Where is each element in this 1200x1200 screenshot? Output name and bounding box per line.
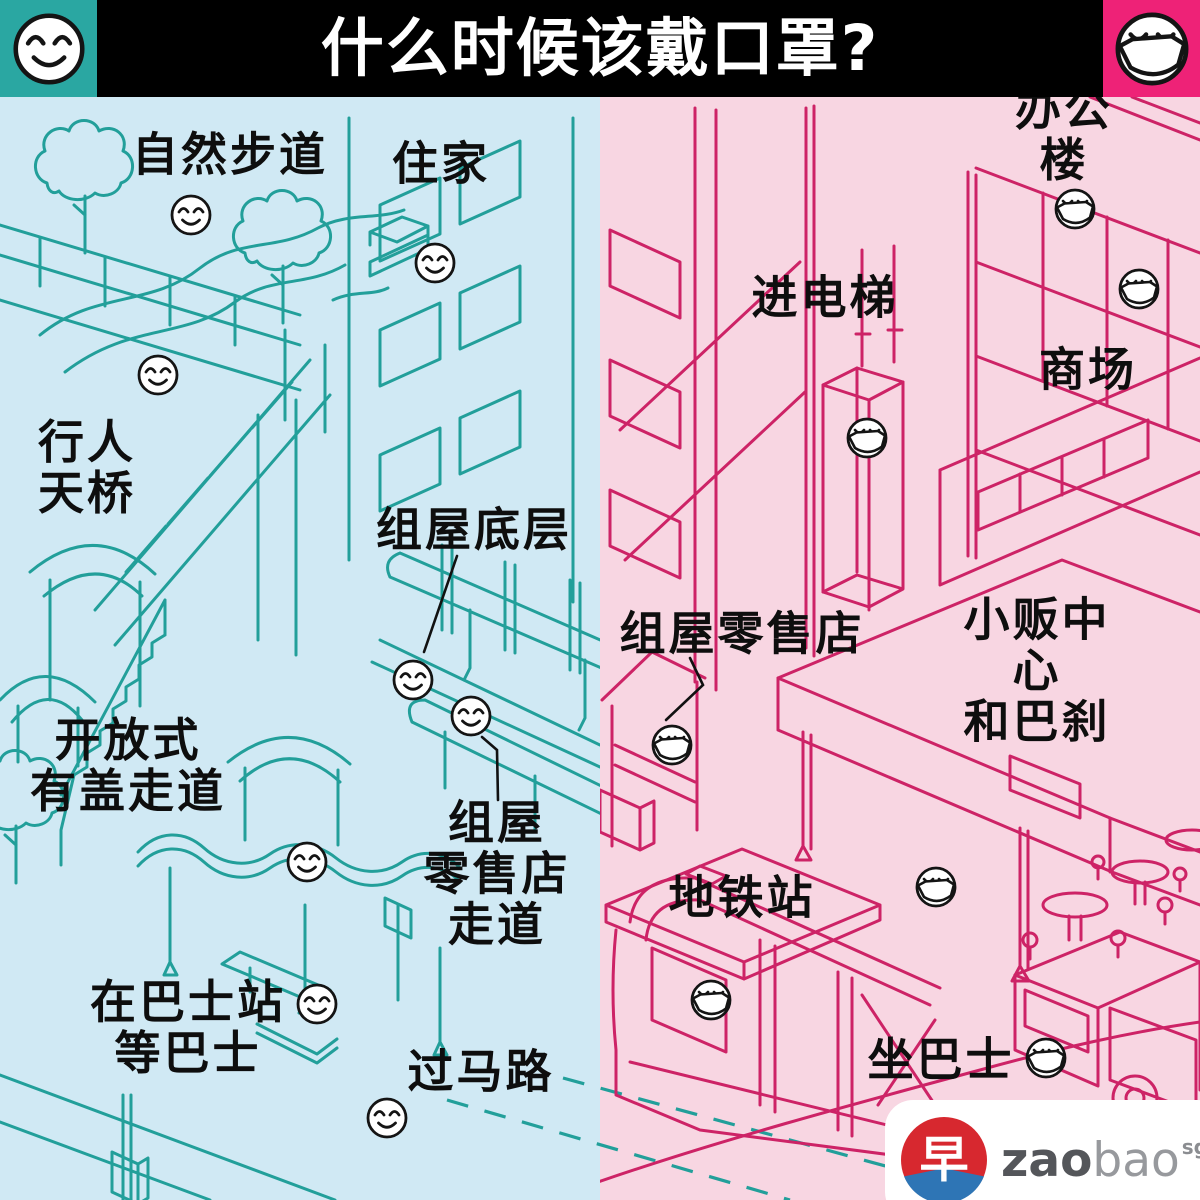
smiley-mask-icon (1120, 270, 1158, 308)
road-curb (0, 1075, 335, 1200)
page-title: 什么时候该戴口罩? (97, 0, 1103, 97)
smiley-no-mask-icon (11, 11, 87, 87)
label-hawker-centre-market: 小贩中心 和巴刹 (956, 594, 1119, 747)
tree-icon (233, 191, 330, 324)
smiley-mask-icon (692, 981, 730, 1019)
smiley-mask-icon (653, 726, 691, 764)
label-wait-bus-at-stop: 在巴士站 等巴士 (90, 977, 286, 1079)
smiley-no-mask-icon (416, 244, 454, 282)
smiley-mask-icon (1027, 1039, 1065, 1077)
label-crossing-road: 过马路 (408, 1046, 555, 1097)
smiley-mask-icon (1113, 10, 1191, 88)
label-taking-lift: 进电梯 (752, 272, 899, 323)
smiley-no-mask-icon (139, 356, 177, 394)
smiley-no-mask-icon (394, 661, 432, 699)
label-mall: 商场 (1039, 344, 1137, 395)
zaobao-glyph: 早 (919, 1130, 968, 1188)
no-mask-badge (0, 0, 97, 97)
logo-zao-text: zao (1001, 1133, 1092, 1188)
zaobao-wordmark: zaobaosg (1001, 1133, 1200, 1188)
label-open-covered-walkway: 开放式 有盖走道 (30, 715, 226, 817)
label-home: 住家 (392, 138, 490, 189)
zaobao-logo: 早 zaobaosg (885, 1100, 1200, 1200)
smiley-no-mask-icon (368, 1099, 406, 1137)
label-taking-bus: 坐巴士 (868, 1034, 1015, 1085)
zaobao-circle-icon: 早 (901, 1117, 987, 1200)
header-bar: 什么时候该戴口罩? (0, 0, 1200, 97)
label-pedestrian-bridge: 行人 天桥 (38, 417, 136, 519)
smiley-mask-icon (917, 868, 955, 906)
label-hdb-retail-shop: 组屋零售店 (620, 608, 865, 659)
label-hdb-void-deck: 组屋底层 (376, 504, 572, 555)
label-mrt-station: 地铁站 (669, 872, 816, 923)
smiley-no-mask-icon (298, 985, 336, 1023)
smiley-mask-icon (1056, 190, 1094, 228)
label-office-building: 办公楼 (996, 84, 1132, 186)
tree-icon (35, 121, 132, 254)
smiley-no-mask-icon (288, 843, 326, 881)
smiley-no-mask-icon (452, 697, 490, 735)
smiley-mask-icon (848, 419, 886, 457)
infographic: 自然步道 住家 行人 天桥 组屋底层 开放式 有盖走道 组屋 零售店 走道 在巴… (0, 0, 1200, 1200)
logo-sg-superscript: sg (1182, 1135, 1200, 1159)
mask-badge (1103, 0, 1200, 97)
label-hdb-shop-walkway: 组屋 零售店 走道 (424, 797, 571, 950)
logo-bao-text: bao (1092, 1133, 1179, 1188)
smiley-no-mask-icon (172, 196, 210, 234)
label-nature-trail: 自然步道 (132, 129, 328, 180)
